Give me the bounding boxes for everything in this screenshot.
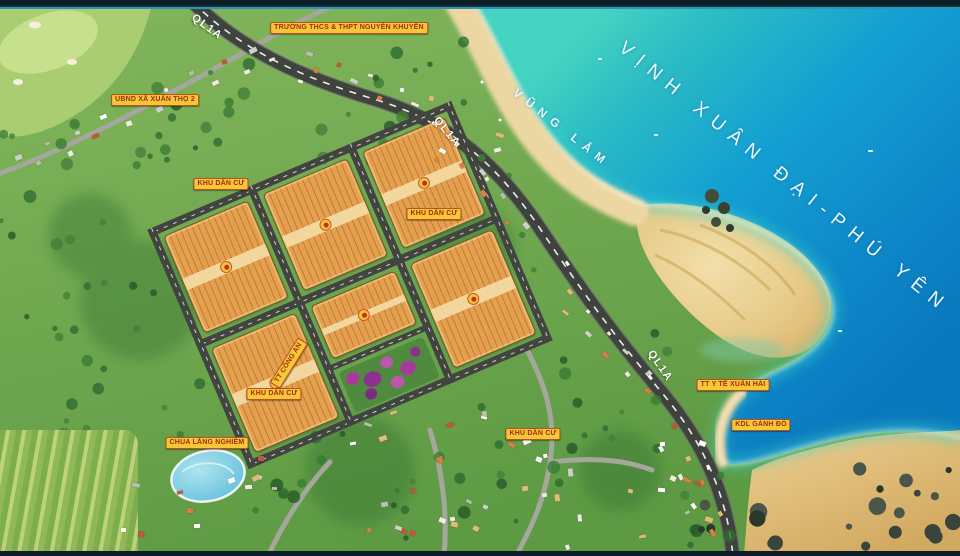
lot-badge-icon (318, 217, 334, 233)
tree (133, 325, 140, 332)
rock (846, 524, 852, 530)
tree (223, 106, 234, 117)
rock (749, 510, 765, 526)
tree (346, 112, 351, 117)
tree (496, 479, 507, 490)
tree (413, 68, 418, 73)
tree (410, 479, 416, 485)
tree (427, 62, 432, 67)
tree (147, 153, 153, 159)
tree (651, 395, 662, 406)
house (660, 442, 665, 447)
tree (401, 506, 410, 515)
poi-kdc-label-2: KHU DÂN CƯ (406, 208, 461, 220)
house (137, 531, 144, 537)
tree (61, 158, 73, 170)
tree (458, 37, 469, 48)
poi-ubnd-label: UBND XÃ XUÂN THỌ 2 (111, 94, 199, 106)
poi-school-label: TRƯỜNG THCS & THPT NGUYỄN KHUYẾN (270, 22, 428, 34)
tree (213, 138, 222, 147)
rock (876, 485, 883, 492)
tree (454, 473, 465, 484)
tree (497, 471, 505, 479)
tree (602, 425, 608, 431)
lot-badge-icon (356, 307, 372, 323)
house (554, 494, 560, 501)
house (658, 488, 665, 493)
tree (168, 113, 176, 121)
tree (403, 535, 409, 541)
rock (889, 526, 902, 539)
lot-badge-icon (218, 259, 234, 275)
tree (129, 282, 137, 290)
tree (194, 378, 205, 389)
tree (514, 519, 519, 524)
tree (391, 47, 404, 60)
tree (687, 542, 694, 549)
tree (391, 502, 397, 508)
tree (316, 455, 326, 465)
tree (63, 292, 71, 300)
tree (82, 355, 93, 366)
masterplan-map: TRƯỜNG THCS & THPT NGUYỄN KHUYẾN UBND XÃ… (0, 0, 960, 556)
tree (52, 326, 57, 331)
tree (717, 472, 725, 480)
lot-badge-icon (416, 175, 432, 191)
rock (861, 542, 870, 551)
blossom-tree (389, 374, 407, 391)
tree (340, 431, 346, 437)
tree (287, 490, 300, 503)
rock (931, 492, 939, 500)
house (428, 95, 434, 101)
tree (478, 154, 486, 162)
tree (531, 267, 537, 273)
tree (373, 75, 380, 82)
tree (208, 70, 213, 75)
tree (252, 507, 259, 514)
tree (83, 282, 91, 290)
house (577, 514, 582, 522)
tree (566, 443, 577, 454)
tree (573, 398, 583, 408)
tree (201, 122, 212, 133)
tree (723, 529, 736, 542)
tree (582, 432, 588, 438)
house (120, 528, 125, 532)
tree (519, 232, 525, 238)
rock (946, 467, 952, 473)
tree (460, 99, 467, 106)
shallow-pool (700, 338, 784, 362)
house (481, 411, 487, 416)
lot-badge-icon (465, 291, 481, 307)
tree (55, 333, 64, 342)
blossom-tree (364, 386, 379, 401)
house (272, 487, 277, 490)
bottom-frame-bar (0, 551, 960, 556)
poi-kdc-label-1: KHU DÂN CƯ (193, 178, 248, 190)
poi-pagoda-label: CHÙA LĂNG NGHIÊM (166, 437, 249, 449)
tree (619, 409, 624, 414)
tree (560, 356, 568, 364)
tree (155, 132, 162, 139)
house (258, 456, 264, 461)
rock (894, 507, 905, 518)
house (186, 508, 193, 513)
tree (559, 367, 571, 379)
tree (8, 232, 16, 240)
tree (69, 119, 80, 130)
tree (9, 133, 15, 139)
rock (899, 474, 913, 488)
tree (238, 87, 251, 100)
blossom-tree (398, 358, 418, 377)
tree (93, 383, 105, 395)
tree (243, 58, 255, 70)
tree (51, 238, 63, 250)
tree (101, 280, 107, 286)
tree (555, 479, 564, 488)
blossom-tree (409, 345, 422, 358)
tree (507, 173, 512, 178)
house (244, 485, 251, 490)
rock (853, 462, 866, 475)
rock (914, 490, 921, 497)
tree (297, 479, 306, 488)
tree (224, 98, 234, 108)
tree (160, 144, 171, 155)
tree (495, 440, 504, 449)
tree (193, 145, 198, 150)
tree (162, 405, 168, 411)
tree (394, 488, 400, 494)
tree (65, 235, 75, 245)
tree (316, 124, 328, 136)
tree (70, 325, 79, 334)
poi-yte-label: TT Y TẾ XUÂN HẢI (697, 379, 770, 391)
poi-kdc-label-3: KHU DÂN CƯ (246, 388, 301, 400)
tree (609, 434, 616, 441)
rock (700, 500, 711, 511)
house (411, 488, 417, 492)
house (639, 534, 646, 538)
tree (66, 398, 78, 410)
rock (767, 539, 776, 548)
tree (56, 138, 67, 149)
poi-kdl-label: KDL GÀNH ĐỎ (731, 419, 790, 431)
tree (458, 506, 471, 519)
tree (151, 82, 163, 94)
tree (64, 418, 70, 424)
poi-kdc-label-4: KHU DÂN CƯ (505, 428, 560, 440)
tree (150, 289, 157, 296)
rock (699, 526, 705, 532)
farm-fields (0, 430, 138, 556)
tree (135, 147, 146, 158)
blossom-tree (361, 369, 383, 390)
tree (279, 489, 289, 499)
blossom-tree (344, 370, 362, 387)
tree (164, 157, 170, 163)
tree (100, 366, 107, 373)
tree (547, 461, 560, 474)
rock (869, 497, 887, 515)
top-frame-bar (0, 0, 960, 9)
tree (100, 219, 107, 226)
tree (662, 346, 672, 356)
tree (24, 190, 37, 203)
tree (133, 161, 141, 169)
tree (680, 491, 689, 500)
tree (478, 403, 486, 411)
tree (650, 329, 659, 338)
tree (24, 314, 29, 319)
blossom-tree (378, 355, 394, 370)
rock (929, 530, 943, 544)
